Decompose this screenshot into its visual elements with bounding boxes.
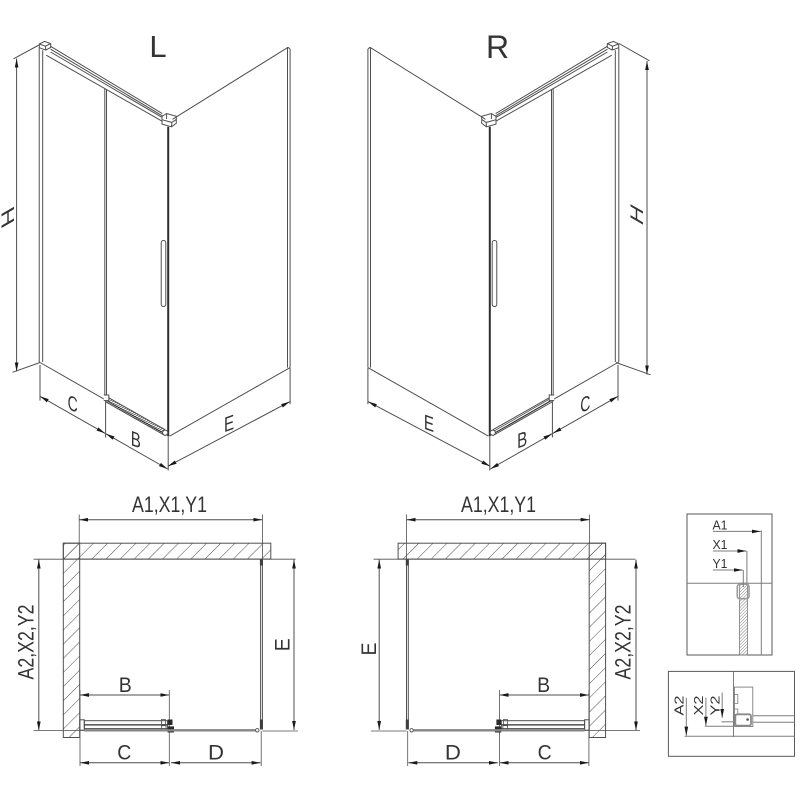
svg-text:C: C [580,391,590,418]
svg-text:E: E [358,643,381,656]
svg-text:B: B [517,427,527,454]
svg-text:A2: A2 [671,696,686,716]
svg-text:X2: X2 [691,696,706,716]
svg-text:A2,X2,Y2: A2,X2,Y2 [14,605,39,680]
svg-text:E: E [424,410,434,437]
svg-text:E: E [272,638,295,651]
svg-text:C: C [538,742,552,765]
svg-text:C: C [68,391,78,418]
svg-text:L: L [149,29,166,64]
svg-text:C: C [117,742,131,765]
svg-text:Y2: Y2 [707,696,722,716]
svg-text:B: B [119,674,132,697]
svg-text:A1: A1 [713,518,728,533]
svg-text:D: D [208,742,224,765]
svg-text:X1: X1 [713,537,728,552]
svg-text:D: D [445,742,461,765]
svg-text:Y1: Y1 [713,556,728,571]
svg-text:A1,X1,Y1: A1,X1,Y1 [132,492,207,517]
svg-text:R: R [486,29,509,65]
svg-text:B: B [537,674,550,697]
svg-text:B: B [131,427,141,454]
svg-text:E: E [224,410,234,437]
svg-text:A1,X1,Y1: A1,X1,Y1 [461,492,536,517]
svg-text:A2,X2,Y2: A2,X2,Y2 [611,605,636,680]
